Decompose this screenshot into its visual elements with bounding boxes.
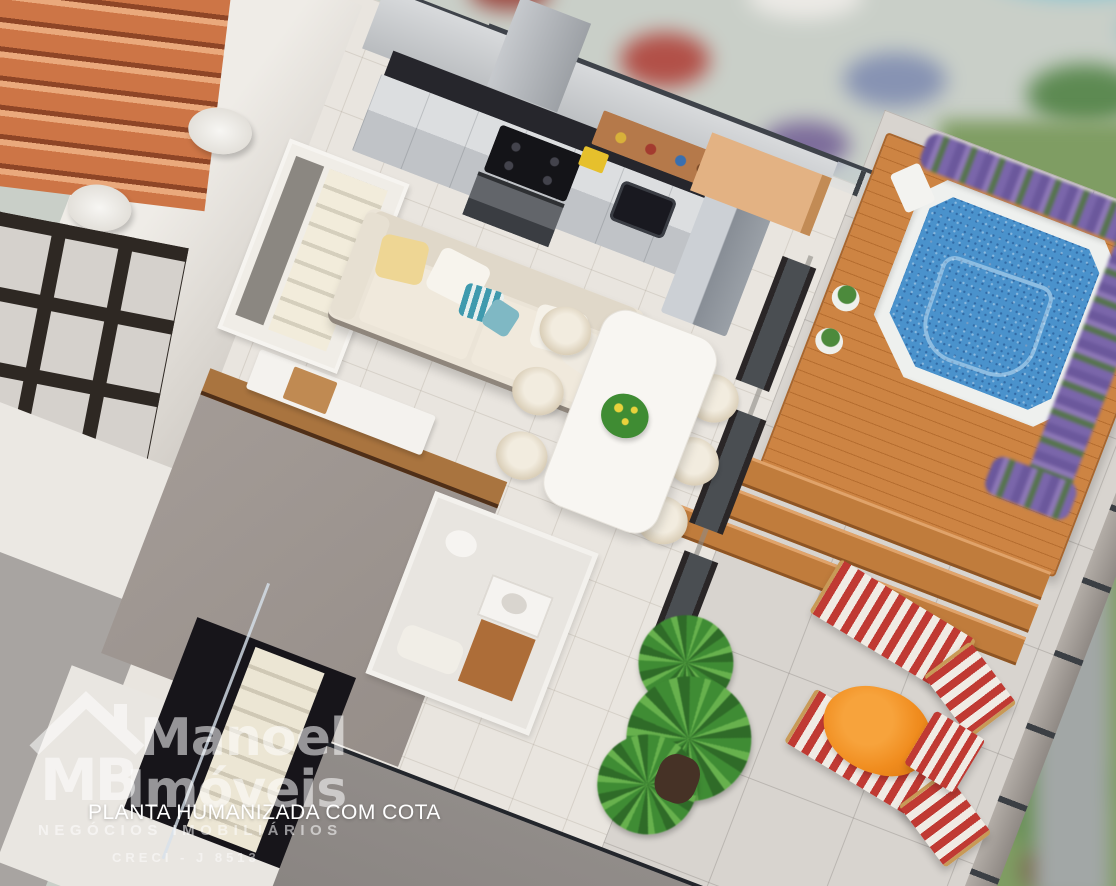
caption-planta-humanizada: PLANTA HUMANIZADA COM COTA <box>88 801 441 825</box>
bath-bench <box>394 622 466 677</box>
brand-name-line1: Manoel <box>140 712 347 764</box>
toilet <box>442 526 481 562</box>
brick-roof <box>0 0 235 211</box>
brand-license: CRECI - J 8513 <box>112 850 260 865</box>
render-canvas: MB Manoel Imóveis NEGÓCIOS IMOBILIÁRIOS … <box>0 0 1116 886</box>
